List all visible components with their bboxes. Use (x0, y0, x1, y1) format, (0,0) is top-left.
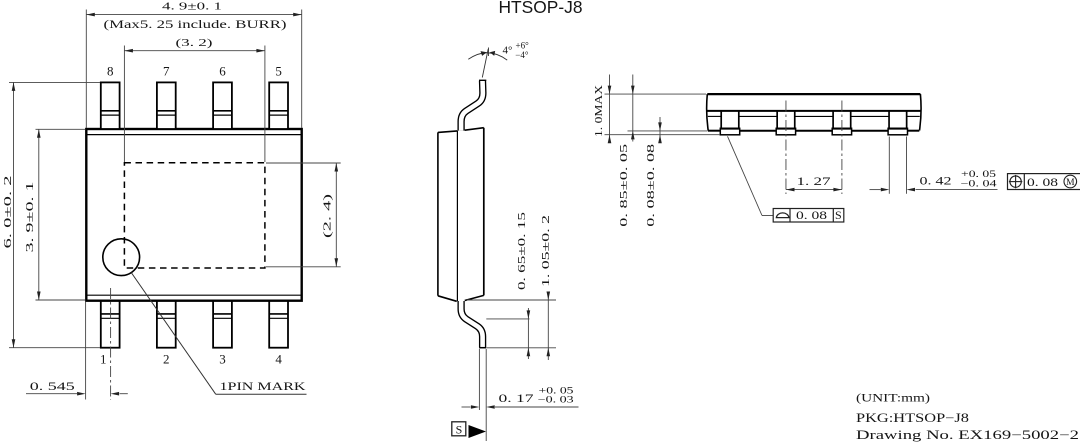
svg-text:0. 42: 0. 42 (920, 174, 952, 188)
svg-text:5: 5 (275, 64, 282, 79)
svg-text:(2. 4): (2. 4) (322, 193, 334, 238)
svg-text:1: 1 (100, 351, 107, 366)
svg-text:(UNIT:mm): (UNIT:mm) (856, 391, 930, 405)
svg-text:2: 2 (163, 351, 170, 366)
svg-text:0. 545: 0. 545 (30, 379, 75, 393)
svg-text:8: 8 (107, 64, 114, 79)
svg-text:(Max5. 25 include. BURR): (Max5. 25 include. BURR) (104, 19, 287, 31)
svg-text:4: 4 (275, 351, 282, 366)
svg-text:0. 08±0. 08: 0. 08±0. 08 (645, 143, 657, 227)
svg-text:S: S (835, 208, 842, 222)
svg-text:PKG:HTSOP−J8: PKG:HTSOP−J8 (856, 411, 969, 425)
svg-text:M: M (1066, 178, 1075, 188)
svg-text:+0. 05: +0. 05 (961, 170, 996, 180)
svg-text:3: 3 (219, 351, 226, 366)
svg-text:HTSOP-J8: HTSOP-J8 (499, 0, 583, 17)
svg-text:S: S (456, 423, 463, 437)
svg-text:6: 6 (219, 64, 226, 79)
svg-text:0. 65±0. 15: 0. 65±0. 15 (516, 211, 528, 290)
svg-text:−0. 03: −0. 03 (538, 396, 574, 406)
svg-text:+6°: +6° (516, 41, 530, 51)
svg-text:0. 08: 0. 08 (796, 208, 827, 222)
svg-text:Drawing No. EX169−5002−2: Drawing No. EX169−5002−2 (856, 428, 1079, 442)
svg-text:−0. 04: −0. 04 (961, 180, 997, 190)
svg-text:6. 0±0. 2: 6. 0±0. 2 (2, 176, 14, 249)
svg-text:(3. 2): (3. 2) (176, 38, 214, 49)
svg-text:4. 9±0. 1: 4. 9±0. 1 (162, 1, 222, 12)
svg-text:0. 08: 0. 08 (1027, 175, 1058, 189)
svg-text:0. 85±0. 05: 0. 85±0. 05 (618, 143, 630, 227)
svg-text:1. 05±0. 2: 1. 05±0. 2 (540, 215, 552, 287)
svg-text:3. 9±0. 1: 3. 9±0. 1 (24, 182, 36, 253)
svg-text:1PIN MARK: 1PIN MARK (220, 379, 306, 393)
svg-text:1. 0MAX: 1. 0MAX (593, 85, 605, 137)
svg-text:7: 7 (163, 64, 170, 79)
svg-text:−4°: −4° (515, 50, 529, 60)
svg-text:4°: 4° (503, 45, 513, 57)
svg-text:0. 17: 0. 17 (499, 391, 534, 405)
svg-text:1. 27: 1. 27 (797, 176, 831, 188)
